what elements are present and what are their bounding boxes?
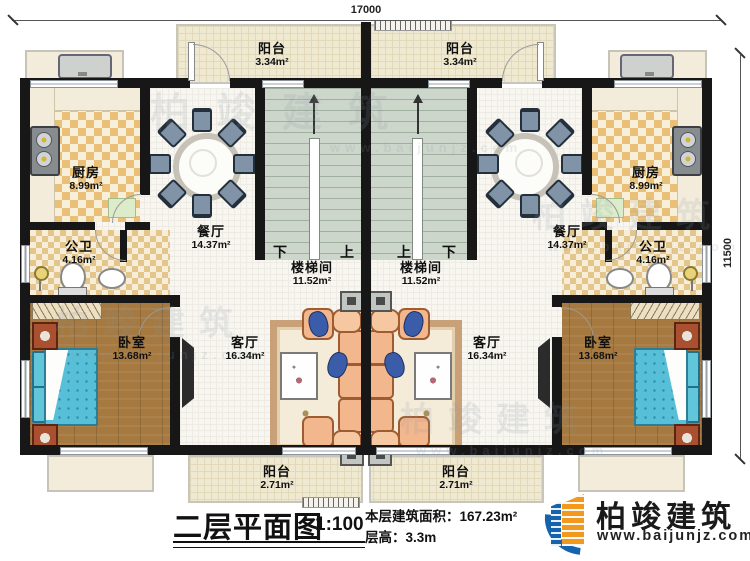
bath-sink-icon xyxy=(98,268,126,289)
chair-icon xyxy=(192,194,212,218)
wall xyxy=(20,295,180,303)
room-label-balcony-bottom-right: 阳台2.71m² xyxy=(439,465,472,491)
window-icon xyxy=(30,80,118,88)
wall xyxy=(637,222,712,230)
logo-building-icon xyxy=(551,502,561,546)
bedroom-bay-window xyxy=(578,455,685,492)
chair-icon xyxy=(233,154,257,174)
room-label-bedroom-left: 卧室13.68m² xyxy=(112,336,151,362)
chair-icon xyxy=(147,154,171,174)
room-label-living-left: 客厅16.34m² xyxy=(225,336,264,362)
room-label-dining-right: 餐厅14.37m² xyxy=(547,225,586,251)
dimension-line-right xyxy=(740,55,741,460)
window-icon xyxy=(60,447,148,455)
room-label-living-right: 客厅16.34m² xyxy=(467,336,506,362)
window-icon xyxy=(702,245,711,283)
bedroom-bay-window xyxy=(47,455,154,492)
nightstand-icon xyxy=(32,322,58,350)
wall xyxy=(552,295,562,307)
dining-table-inner xyxy=(189,149,217,177)
window-icon xyxy=(21,245,30,283)
plan-scale: 1:100 xyxy=(315,514,364,536)
tv-icon xyxy=(538,338,550,408)
window-icon xyxy=(614,80,702,88)
dimension-top-value: 17000 xyxy=(336,4,396,16)
wall xyxy=(582,88,592,195)
stair-arrow-line xyxy=(417,102,419,134)
sofa-corner-icon xyxy=(370,309,400,333)
chair-icon xyxy=(520,194,540,218)
title-underline xyxy=(173,541,365,548)
stair-arrow-line xyxy=(313,102,315,134)
window-icon xyxy=(702,360,711,418)
burner-icon xyxy=(36,132,52,148)
room-label-dining-left: 餐厅14.37m² xyxy=(191,225,230,251)
room-label-balcony-top-left: 阳台3.34m² xyxy=(255,42,288,68)
chair-icon xyxy=(520,108,540,132)
room-label-stair-left: 楼梯间11.52m² xyxy=(291,261,333,287)
sofa-icon xyxy=(367,398,394,433)
tv-icon xyxy=(182,338,194,408)
wall xyxy=(255,88,265,260)
room-label-stair-right: 楼梯间11.52m² xyxy=(400,261,442,287)
faucet-icon xyxy=(645,72,654,76)
stair-arrow-head-icon xyxy=(309,94,319,103)
room-label-kitchen-left: 厨房8.99m² xyxy=(69,166,102,192)
stair-up-label: 上 xyxy=(340,242,354,262)
sliding-door-icon xyxy=(376,447,450,455)
stair-rail xyxy=(412,138,423,260)
brand-logo: 柏竣建筑 www.baijunjz.com xyxy=(540,488,750,558)
side-table-icon xyxy=(368,291,392,312)
dimension-right-value: 11500 xyxy=(722,238,734,268)
shower-stem xyxy=(691,279,693,291)
title-block: 二层平面图 1:100 本层建筑面积：167.23m² 层高：3.3m xyxy=(0,500,560,560)
room-label-bedroom-right: 卧室13.68m² xyxy=(578,336,617,362)
nightstand-icon xyxy=(674,322,700,350)
sofa-corner-icon xyxy=(332,309,362,333)
room-label-bath-left: 公卫4.16m² xyxy=(62,240,95,266)
faucet-icon xyxy=(78,72,87,76)
coffee-table-icon xyxy=(414,352,452,400)
brand-url: www.baijunjz.com xyxy=(597,528,750,544)
shower-head-icon xyxy=(34,266,49,281)
wall xyxy=(170,295,180,307)
burner-icon xyxy=(680,132,696,148)
room-label-kitchen-right: 厨房8.99m² xyxy=(629,166,662,192)
wall xyxy=(20,222,95,230)
plan-floor-height-line: 层高：3.3m xyxy=(365,526,436,546)
wall xyxy=(552,295,712,303)
stair-down-label: 下 xyxy=(442,242,456,262)
wall xyxy=(467,88,477,260)
dimension-line-top xyxy=(12,20,722,21)
stair-down-label: 下 xyxy=(273,242,287,262)
plan-area-line: 本层建筑面积：167.23m² xyxy=(365,505,517,525)
plan-title: 二层平面图 xyxy=(173,504,323,546)
armchair-icon xyxy=(302,416,334,448)
stair-arrow-head-icon xyxy=(413,94,423,103)
armchair-icon xyxy=(398,416,430,448)
window-icon xyxy=(262,80,304,88)
shower-stem xyxy=(39,279,41,291)
dining-table-inner xyxy=(515,149,543,177)
sliding-door-icon xyxy=(282,447,356,455)
window-icon xyxy=(584,447,672,455)
wall xyxy=(140,88,150,195)
wall xyxy=(125,222,150,230)
floor-plan-canvas: 17000 11500 阳台3.34m² 阳台3.34m² 厨房8.99m² 厨… xyxy=(0,0,750,561)
window-icon xyxy=(428,80,470,88)
logo-building-icon xyxy=(562,494,584,546)
railing-hatch xyxy=(374,20,452,31)
room-label-balcony-bottom-left: 阳台2.71m² xyxy=(260,465,293,491)
wall xyxy=(170,337,180,455)
room-label-bath-right: 公卫4.16m² xyxy=(636,240,669,266)
window-icon xyxy=(21,360,30,418)
chair-icon xyxy=(192,108,212,132)
burner-icon xyxy=(680,151,696,167)
wall xyxy=(552,337,562,455)
coffee-table-icon xyxy=(280,352,318,400)
stair-up-label: 上 xyxy=(397,242,411,262)
bath-sink-icon xyxy=(606,268,634,289)
room-label-balcony-top-right: 阳台3.34m² xyxy=(443,42,476,68)
chair-icon xyxy=(475,154,499,174)
stair-rail xyxy=(309,138,320,260)
burner-icon xyxy=(36,151,52,167)
